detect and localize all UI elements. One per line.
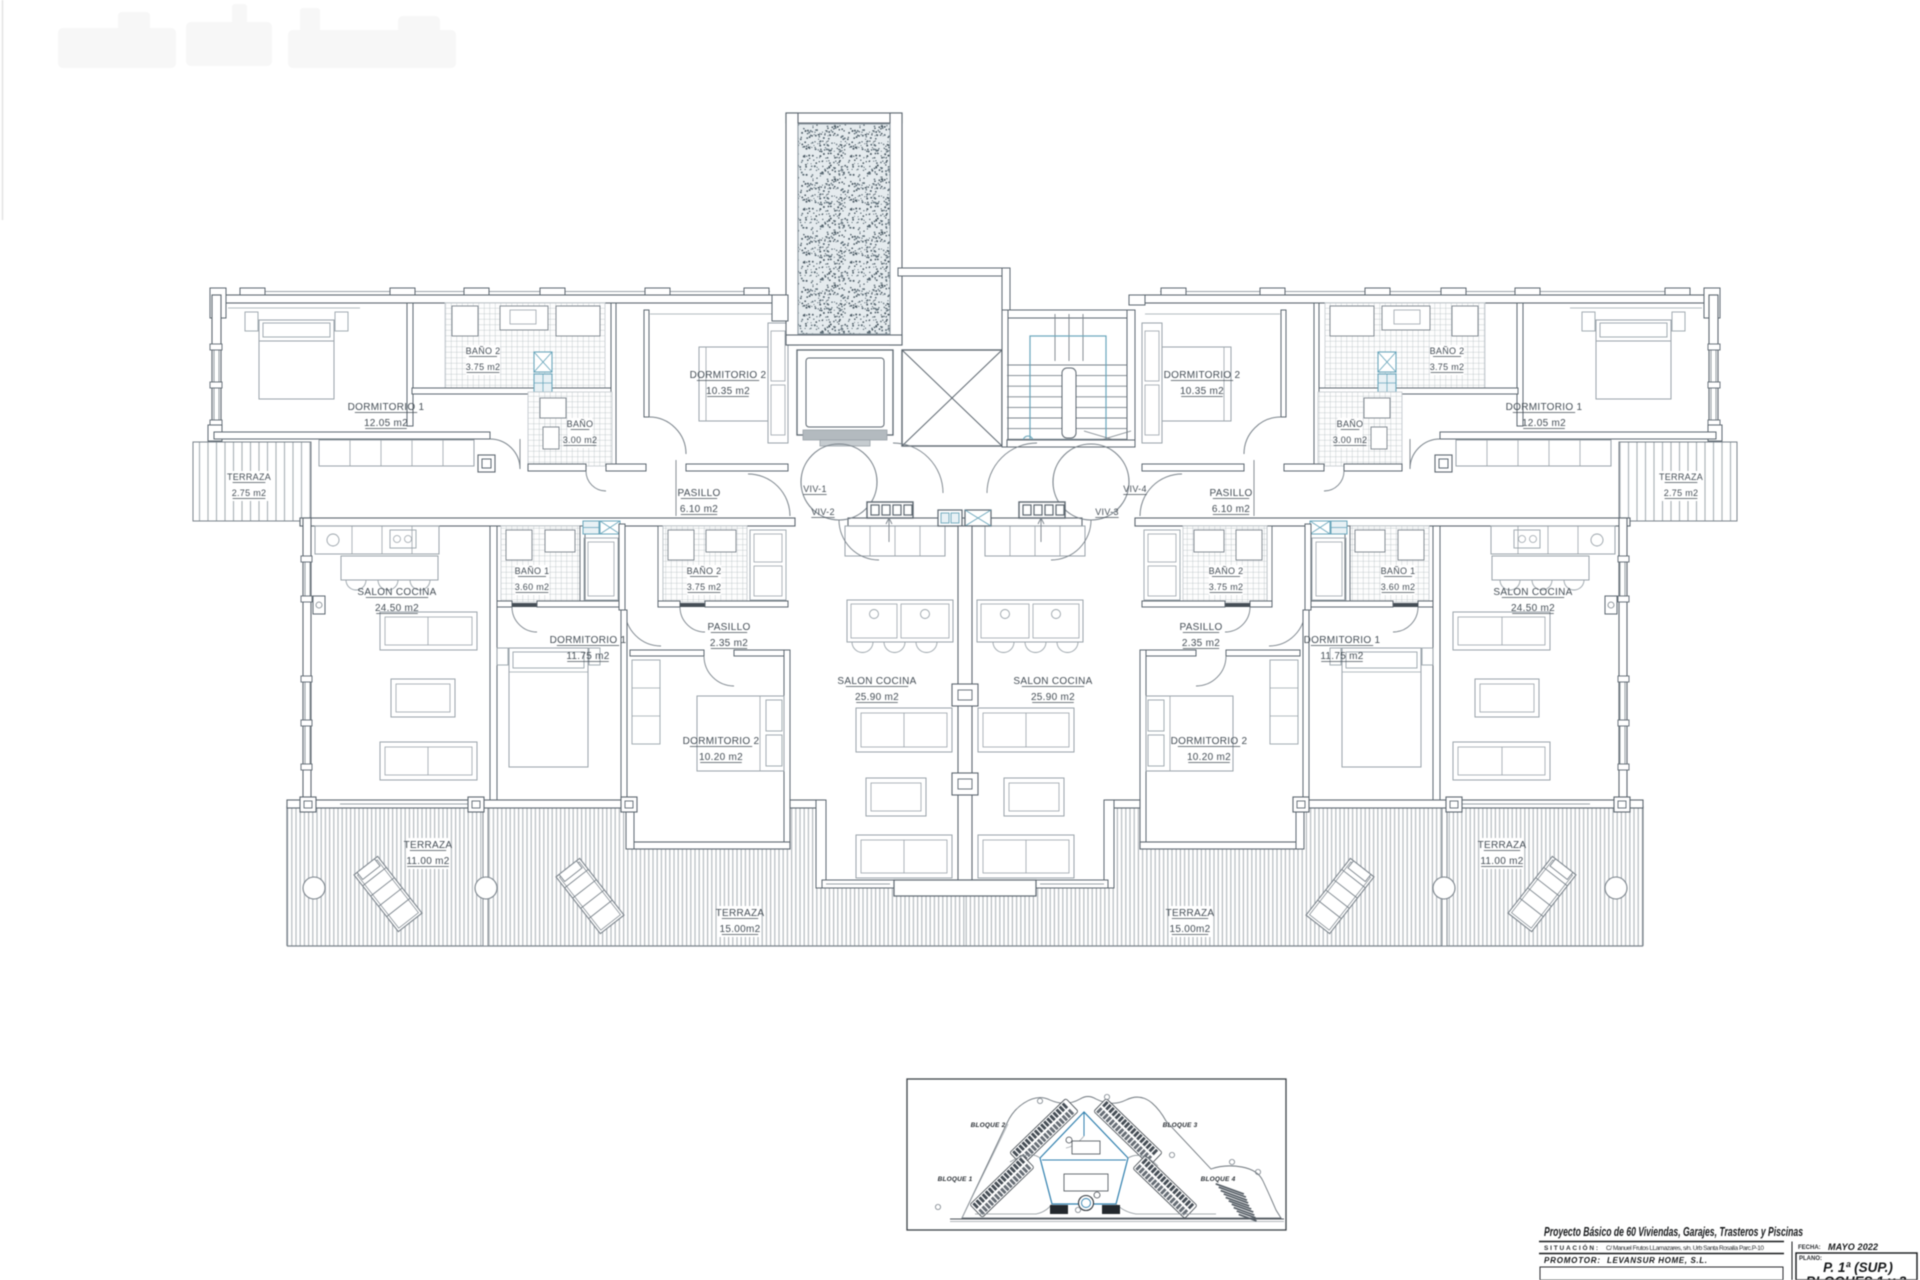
svg-text:12.05 m2: 12.05 m2 bbox=[364, 418, 408, 429]
svg-text:VIV-3: VIV-3 bbox=[1095, 507, 1119, 517]
svg-text:DORMITORIO 1: DORMITORIO 1 bbox=[550, 635, 627, 646]
svg-text:P. 1ª (SUP.): P. 1ª (SUP.) bbox=[1823, 1260, 1893, 1275]
svg-text:25.90 m2: 25.90 m2 bbox=[1031, 692, 1075, 703]
svg-text:3.75 m2: 3.75 m2 bbox=[466, 362, 501, 372]
svg-text:SALON COCINA: SALON COCINA bbox=[1493, 587, 1572, 598]
svg-text:BLOQUE 2: BLOQUE 2 bbox=[971, 1122, 1006, 1129]
svg-text:2.35 m2: 2.35 m2 bbox=[710, 638, 748, 649]
svg-text:2.35 m2: 2.35 m2 bbox=[1182, 638, 1220, 649]
svg-text:BAÑO 2: BAÑO 2 bbox=[687, 566, 722, 576]
svg-text:6.10 m2: 6.10 m2 bbox=[680, 504, 718, 515]
svg-text:BLOQUE 1: BLOQUE 1 bbox=[938, 1176, 973, 1183]
svg-text:VIV-2: VIV-2 bbox=[811, 507, 835, 517]
svg-text:SALON COCINA: SALON COCINA bbox=[1013, 676, 1092, 687]
svg-text:BAÑO: BAÑO bbox=[567, 419, 594, 429]
svg-text:3.60 m2: 3.60 m2 bbox=[515, 582, 550, 592]
svg-text:TERRAZA: TERRAZA bbox=[227, 472, 271, 482]
svg-text:10.35 m2: 10.35 m2 bbox=[706, 386, 750, 397]
svg-text:15.00m2: 15.00m2 bbox=[1169, 924, 1210, 935]
svg-text:DORMITORIO 2: DORMITORIO 2 bbox=[1171, 736, 1248, 747]
svg-text:10.35 m2: 10.35 m2 bbox=[1180, 386, 1224, 397]
svg-text:3.00 m2: 3.00 m2 bbox=[563, 435, 598, 445]
svg-text:SALON COCINA: SALON COCINA bbox=[357, 587, 436, 598]
svg-text:2.75 m2: 2.75 m2 bbox=[232, 488, 267, 498]
svg-text:PASILLO: PASILLO bbox=[1209, 488, 1252, 499]
svg-text:24.50 m2: 24.50 m2 bbox=[1511, 603, 1555, 614]
svg-text:10.20 m2: 10.20 m2 bbox=[1187, 752, 1231, 763]
svg-text:12.05 m2: 12.05 m2 bbox=[1522, 418, 1566, 429]
svg-text:MAYO 2022: MAYO 2022 bbox=[1828, 1242, 1878, 1252]
svg-text:TERRAZA: TERRAZA bbox=[1478, 840, 1527, 851]
svg-text:BAÑO 1: BAÑO 1 bbox=[515, 566, 550, 576]
svg-text:BAÑO 1: BAÑO 1 bbox=[1381, 566, 1416, 576]
svg-text:DORMITORIO 2: DORMITORIO 2 bbox=[683, 736, 760, 747]
svg-text:Proyecto Básico de 60 Vivienda: Proyecto Básico de 60 Viviendas, Garajes… bbox=[1544, 1224, 1803, 1239]
svg-text:TERRAZA: TERRAZA bbox=[1166, 908, 1215, 919]
svg-text:11.75 m2: 11.75 m2 bbox=[1320, 651, 1363, 662]
svg-text:BAÑO 2: BAÑO 2 bbox=[1209, 566, 1244, 576]
svg-text:DORMITORIO 1: DORMITORIO 1 bbox=[348, 402, 425, 413]
svg-text:3.60 m2: 3.60 m2 bbox=[1381, 582, 1416, 592]
svg-text:VIV-4: VIV-4 bbox=[1123, 484, 1147, 494]
svg-text:TERRAZA: TERRAZA bbox=[716, 908, 765, 919]
svg-text:11.00 m2: 11.00 m2 bbox=[1480, 856, 1523, 867]
svg-text:PASILLO: PASILLO bbox=[1179, 622, 1222, 633]
svg-text:2.75 m2: 2.75 m2 bbox=[1664, 488, 1699, 498]
svg-text:BLOQUE 3: BLOQUE 3 bbox=[1163, 1122, 1198, 1129]
svg-text:C/ Manuel Frutos LLamazares, s: C/ Manuel Frutos LLamazares, s/n. Urb Sa… bbox=[1606, 1245, 1764, 1252]
svg-text:3.75 m2: 3.75 m2 bbox=[1430, 362, 1465, 372]
svg-text:DORMITORIO 1: DORMITORIO 1 bbox=[1304, 635, 1381, 646]
svg-text:BLOQUES 1 y 3: BLOQUES 1 y 3 bbox=[1806, 1274, 1907, 1280]
svg-text:PASILLO: PASILLO bbox=[677, 488, 720, 499]
svg-text:11.00 m2: 11.00 m2 bbox=[406, 856, 449, 867]
svg-text:BAÑO 2: BAÑO 2 bbox=[1430, 346, 1465, 356]
svg-text:DORMITORIO 2: DORMITORIO 2 bbox=[690, 370, 767, 381]
svg-text:SALON COCINA: SALON COCINA bbox=[837, 676, 916, 687]
svg-text:BLOQUE 4: BLOQUE 4 bbox=[1201, 1176, 1236, 1183]
svg-text:DORMITORIO 1: DORMITORIO 1 bbox=[1506, 402, 1583, 413]
svg-text:LEVANSUR HOME, S.L.: LEVANSUR HOME, S.L. bbox=[1607, 1256, 1707, 1265]
svg-text:25.90 m2: 25.90 m2 bbox=[855, 692, 899, 703]
svg-text:3.75 m2: 3.75 m2 bbox=[687, 582, 722, 592]
svg-text:PLANO:: PLANO: bbox=[1799, 1256, 1822, 1262]
svg-text:6.10 m2: 6.10 m2 bbox=[1212, 504, 1250, 515]
svg-text:24.50 m2: 24.50 m2 bbox=[375, 603, 419, 614]
svg-text:FECHA:: FECHA: bbox=[1798, 1245, 1821, 1251]
svg-text:3.00 m2: 3.00 m2 bbox=[1333, 435, 1368, 445]
svg-text:TERRAZA: TERRAZA bbox=[404, 840, 453, 851]
svg-text:BAÑO 2: BAÑO 2 bbox=[466, 346, 501, 356]
svg-text:BAÑO: BAÑO bbox=[1337, 419, 1364, 429]
svg-text:PASILLO: PASILLO bbox=[707, 622, 750, 633]
svg-text:TERRAZA: TERRAZA bbox=[1659, 472, 1703, 482]
svg-text:VIV-1: VIV-1 bbox=[803, 484, 827, 494]
svg-text:11.75 m2: 11.75 m2 bbox=[566, 651, 609, 662]
svg-text:DORMITORIO 2: DORMITORIO 2 bbox=[1164, 370, 1241, 381]
svg-text:10.20 m2: 10.20 m2 bbox=[699, 752, 743, 763]
svg-text:3.75 m2: 3.75 m2 bbox=[1209, 582, 1244, 592]
svg-text:15.00m2: 15.00m2 bbox=[719, 924, 760, 935]
svg-text:PROMOTOR:: PROMOTOR: bbox=[1544, 1256, 1600, 1265]
